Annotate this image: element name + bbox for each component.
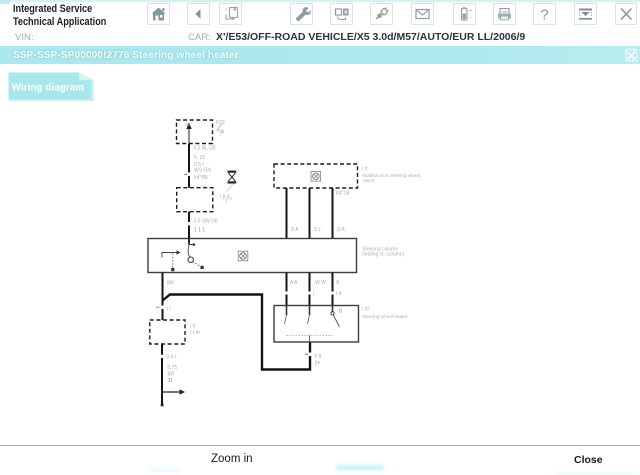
svg-text:t t ttt: t t ttt: [190, 330, 200, 336]
svg-text:t: t: [313, 292, 315, 298]
svg-text:Steering wheel heater: Steering wheel heater: [362, 314, 408, 319]
svg-text:F23: F23: [216, 120, 225, 126]
svg-text:X4*8B: X4*8B: [194, 175, 209, 181]
svg-text:A: A: [336, 280, 340, 286]
svg-text:1+: 1+: [315, 361, 321, 367]
svg-text:t tt: t tt: [336, 291, 342, 297]
svg-text:BR: BR: [167, 281, 174, 287]
svg-text:.5 A: .5 A: [290, 227, 299, 233]
svg-text:5A: 5A: [218, 129, 225, 135]
svg-text:X tt: X tt: [314, 354, 322, 360]
svg-text:30: 30: [185, 122, 191, 127]
svg-text:0.5 BL GE: 0.5 BL GE: [194, 146, 218, 152]
svg-text:t tt: t tt: [190, 324, 196, 330]
svg-text:t tt: t tt: [362, 167, 368, 173]
svg-text:X4*1B: X4*1B: [336, 191, 351, 197]
svg-text:0.5 t: 0.5 t: [167, 355, 177, 361]
svg-text:WS GN: WS GN: [194, 168, 211, 174]
svg-text:A A: A A: [290, 280, 298, 286]
svg-text:0. 25: 0. 25: [194, 155, 205, 161]
svg-text:.5 A: .5 A: [336, 227, 345, 233]
svg-text:31: 31: [168, 378, 174, 384]
svg-text:electr.: electr.: [363, 178, 376, 183]
svg-text:W W: W W: [315, 280, 326, 286]
svg-text:heating st. column): heating st. column): [362, 252, 405, 258]
svg-text:0.75: 0.75: [168, 365, 178, 371]
svg-text:t ttt: t ttt: [362, 307, 370, 313]
svg-text:1 1 1: 1 1 1: [194, 228, 205, 234]
svg-text:t t: t t: [167, 307, 172, 313]
svg-text:0.5 SW GE: 0.5 SW GE: [194, 219, 220, 225]
svg-text:.5 L: .5 L: [313, 227, 322, 233]
svg-text:BR: BR: [168, 372, 175, 378]
svg-text:. t: . t: [223, 199, 228, 205]
